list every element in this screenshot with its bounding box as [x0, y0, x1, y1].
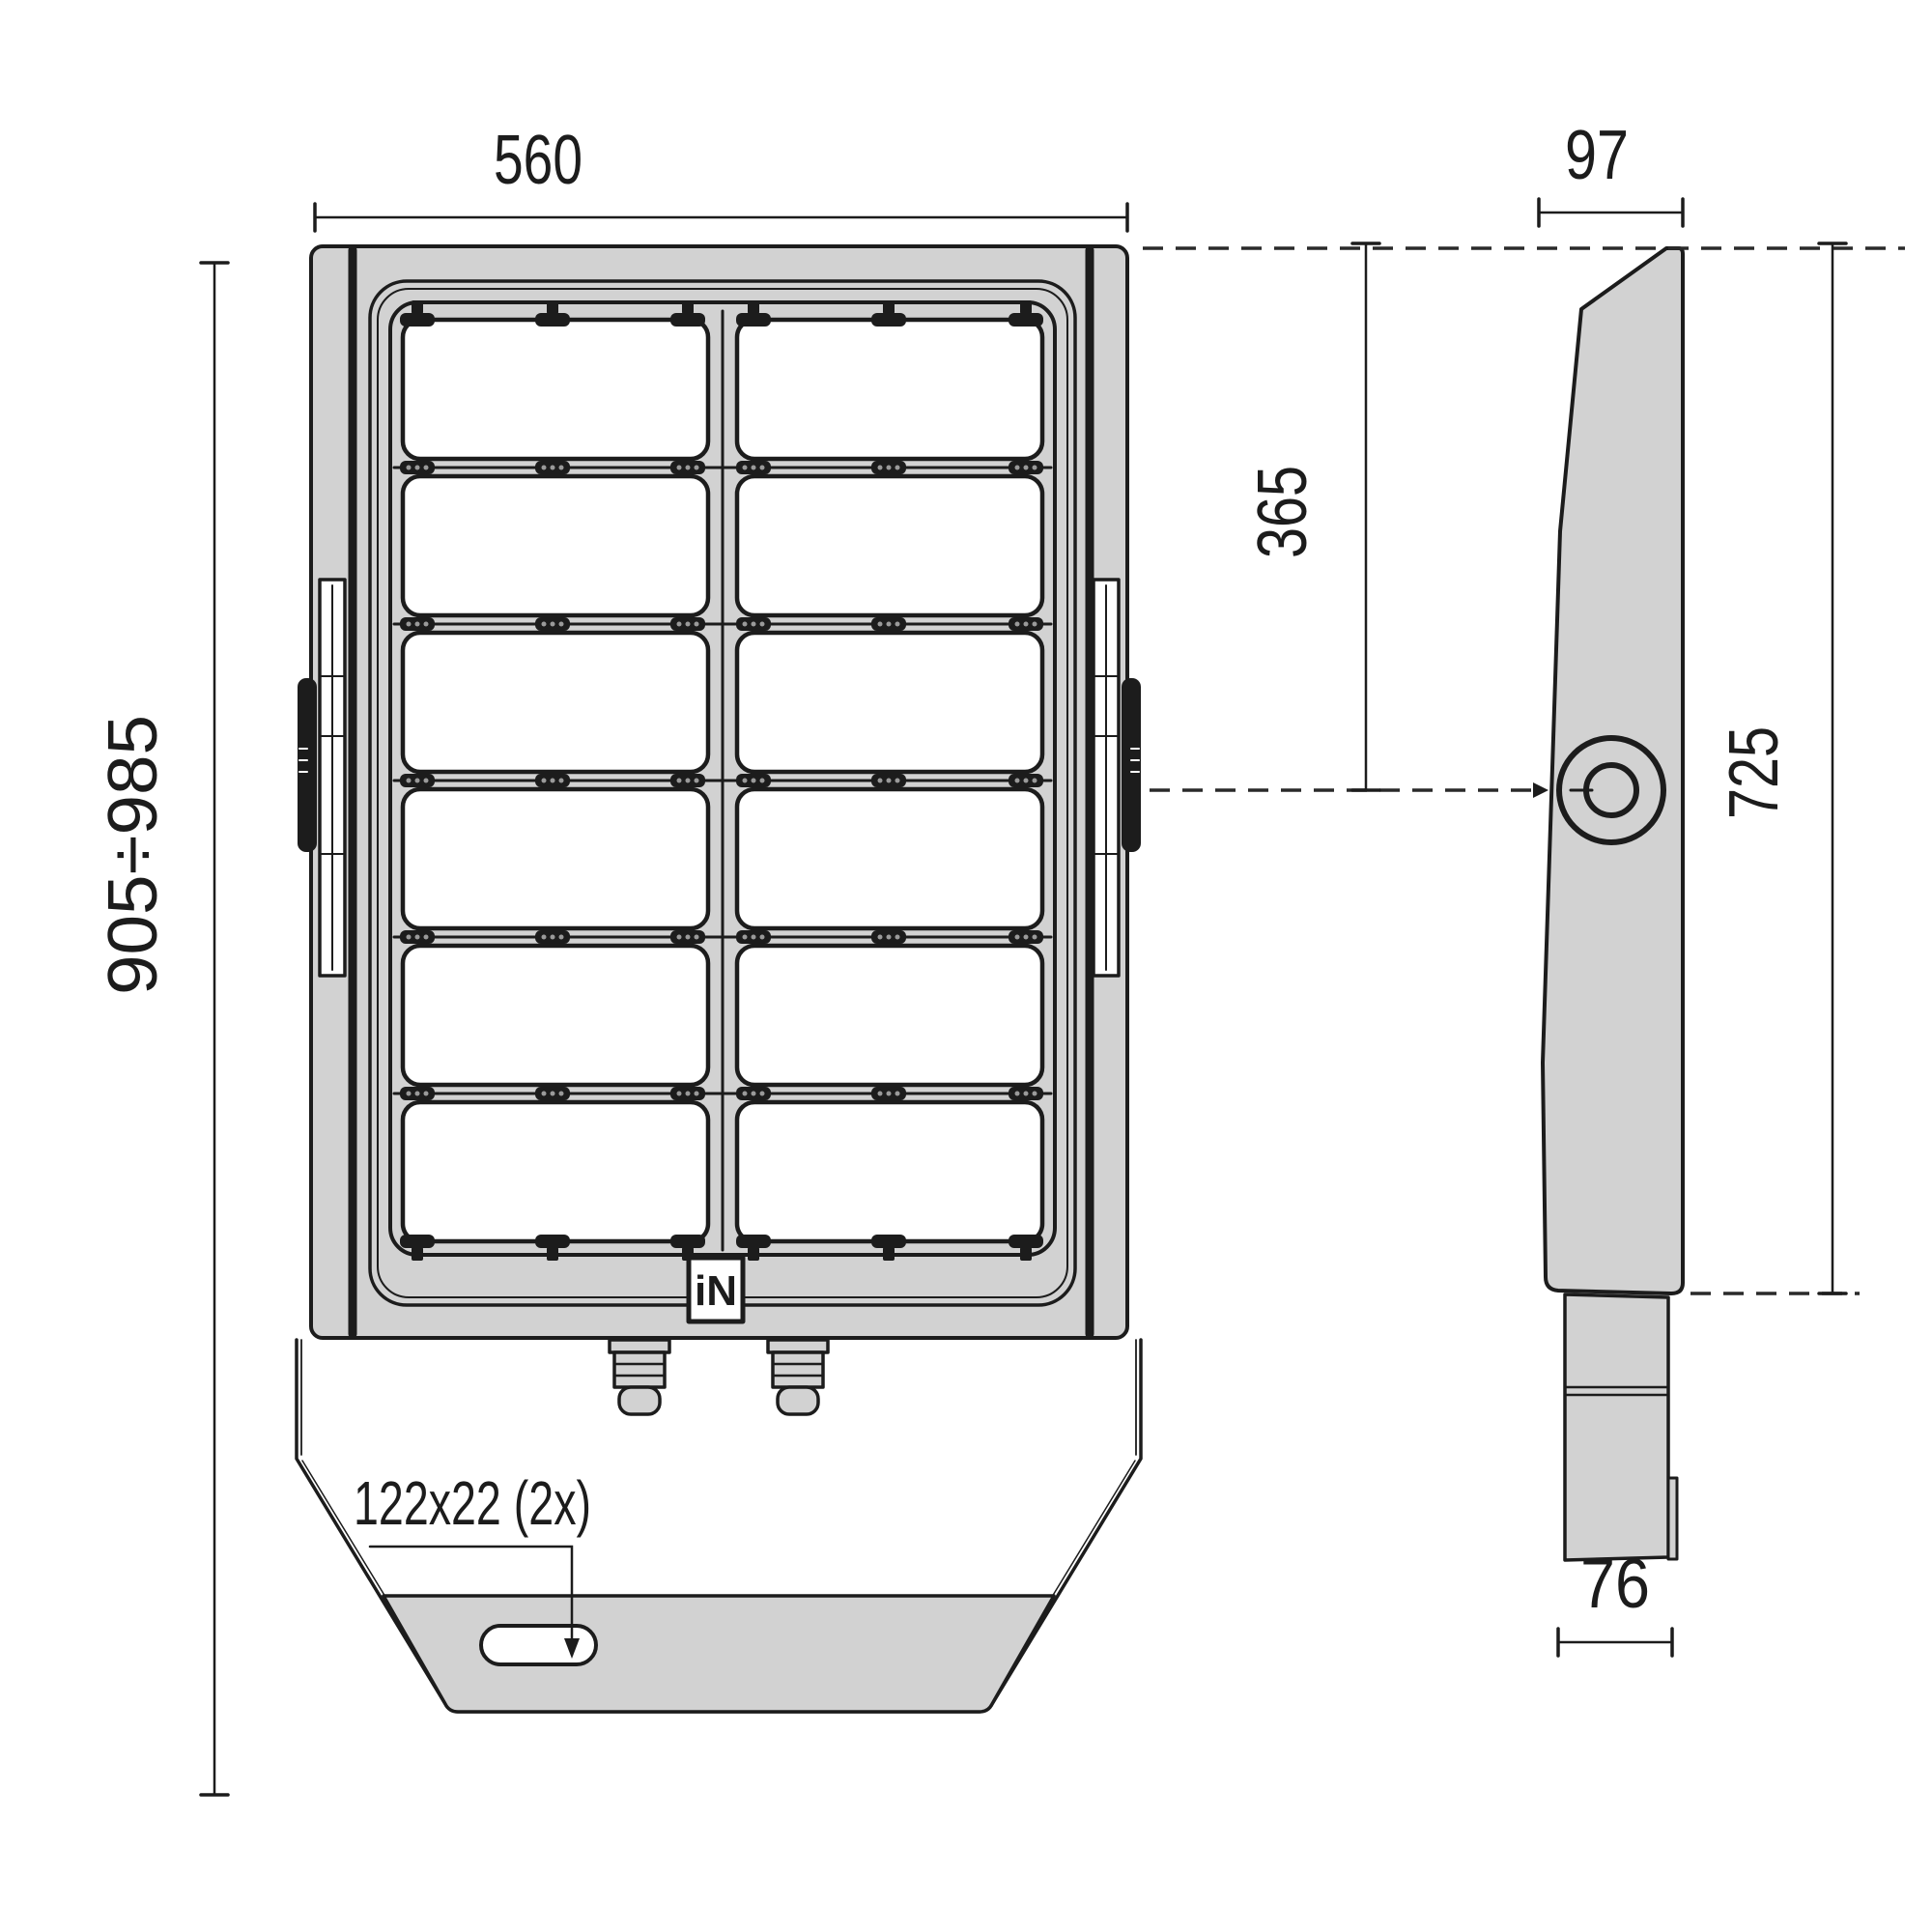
panel-clip-dot	[887, 1092, 892, 1096]
panel-clip-dot	[695, 622, 699, 627]
panel-clip-dot	[760, 466, 765, 470]
led-panel	[737, 320, 1042, 459]
panel-clip-dot	[686, 779, 691, 783]
panel-clip-dot	[895, 1092, 900, 1096]
panel-clip-dot	[424, 935, 429, 940]
panel-clip	[535, 1235, 570, 1248]
panel-clip-dot	[407, 935, 412, 940]
panel-clip-dot	[407, 466, 412, 470]
panel-clip-dot	[887, 935, 892, 940]
floodlight-dimension-drawing: iN	[0, 0, 1932, 1932]
panel-clip-dot	[686, 935, 691, 940]
panel-clip-dot	[686, 622, 691, 627]
panel-clip-dot	[695, 466, 699, 470]
right-side-rail	[1094, 580, 1141, 976]
panel-clip-dot	[895, 935, 900, 940]
dimension-arm-width: 76	[1558, 1546, 1672, 1656]
panel-clip-stem	[1020, 300, 1032, 314]
panel-clip-dot	[895, 779, 900, 783]
dimension-pivot-offset: 365	[1244, 243, 1379, 790]
mounting-slot	[481, 1626, 596, 1664]
panel-clip-dot	[878, 935, 883, 940]
dimension-pivot-offset-label: 365	[1244, 466, 1321, 558]
panel-clip-stem	[883, 1247, 895, 1261]
panel-clip	[871, 313, 906, 327]
panel-clip	[1009, 313, 1043, 327]
panel-clip-dot	[542, 1092, 547, 1096]
dimension-overall-height-label: 905÷985	[95, 715, 172, 995]
led-panel	[403, 1102, 708, 1241]
panel-clip-dot	[760, 1092, 765, 1096]
panel-clip-dot	[542, 779, 547, 783]
panel-clip-dot	[559, 622, 564, 627]
panel-clip-dot	[752, 779, 756, 783]
dimension-front-width: 560	[315, 122, 1127, 231]
side-mounting-arm	[1565, 1294, 1677, 1560]
panel-clip-dot	[1024, 466, 1029, 470]
panel-clip-dot	[878, 466, 883, 470]
panel-clip-dot	[752, 1092, 756, 1096]
panel-clip-dot	[1024, 935, 1029, 940]
panel-clip-dot	[743, 935, 748, 940]
panel-clip-dot	[407, 622, 412, 627]
led-panel	[403, 946, 708, 1085]
panel-clip-dot	[1033, 935, 1037, 940]
led-panel	[737, 633, 1042, 772]
panel-clip-dot	[743, 1092, 748, 1096]
panel-clip-dot	[415, 935, 420, 940]
led-panel	[737, 476, 1042, 615]
panel-clip	[736, 1235, 771, 1248]
panel-clip-dot	[760, 622, 765, 627]
panel-clip-dot	[1033, 466, 1037, 470]
panel-clip-dot	[551, 1092, 555, 1096]
panel-clip-dot	[760, 935, 765, 940]
panel-clip-dot	[895, 466, 900, 470]
left-side-rail	[298, 580, 345, 976]
logo-text: iN	[695, 1267, 737, 1315]
dimension-housing-height: 725	[1716, 243, 1846, 1293]
panel-clip-dot	[424, 779, 429, 783]
dimension-housing-height-label: 725	[1716, 726, 1793, 819]
side-view	[1533, 248, 1683, 1560]
panel-clip-stem	[547, 300, 558, 314]
panel-clip-dot	[1015, 622, 1020, 627]
panel-clip	[400, 1235, 435, 1248]
panel-clip-dot	[559, 466, 564, 470]
panel-clip-dot	[542, 622, 547, 627]
panel-clip-stem	[748, 1247, 759, 1261]
panel-clip-dot	[686, 1092, 691, 1096]
panel-clip-dot	[752, 935, 756, 940]
dimension-overall-height: 905÷985	[95, 263, 228, 1795]
panel-clip-dot	[551, 779, 555, 783]
led-panel	[737, 946, 1042, 1085]
panel-clip-dot	[415, 466, 420, 470]
panel-clip-dot	[752, 622, 756, 627]
panel-clip-dot	[695, 779, 699, 783]
panel-clip-dot	[551, 935, 555, 940]
panel-clip-dot	[551, 622, 555, 627]
panel-clip-dot	[407, 1092, 412, 1096]
panel-clip-dot	[760, 779, 765, 783]
dimension-arm-width-label: 76	[1580, 1546, 1650, 1623]
led-panel	[737, 789, 1042, 928]
panel-clip-dot	[743, 622, 748, 627]
panel-clip-dot	[551, 466, 555, 470]
arm-side-plate	[1668, 1478, 1677, 1559]
panel-clip	[670, 1235, 705, 1248]
panel-clip-dot	[415, 622, 420, 627]
panel-clip-dot	[407, 779, 412, 783]
panel-clip-dot	[677, 779, 682, 783]
panel-clip-dot	[424, 622, 429, 627]
panel-clip-dot	[677, 622, 682, 627]
panel-clip-dot	[1015, 466, 1020, 470]
technical-drawing-page: iN	[0, 0, 1932, 1932]
panel-clip-dot	[887, 622, 892, 627]
panel-clip-dot	[1033, 779, 1037, 783]
panel-clip-dot	[1033, 1092, 1037, 1096]
panel-clip-dot	[542, 466, 547, 470]
panel-clip-stem	[883, 300, 895, 314]
led-panel	[737, 1102, 1042, 1241]
panel-clip-dot	[1033, 622, 1037, 627]
led-panel-grid	[394, 300, 1051, 1261]
panel-clip-stem	[547, 1247, 558, 1261]
panel-clip	[736, 313, 771, 327]
panel-clip-dot	[677, 1092, 682, 1096]
panel-clip-dot	[878, 779, 883, 783]
led-panel	[403, 320, 708, 459]
pivot-datum-arrow	[1533, 782, 1548, 798]
panel-clip-dot	[559, 779, 564, 783]
dimension-front-width-label: 560	[494, 122, 582, 199]
panel-clip-dot	[677, 935, 682, 940]
dimension-side-depth: 97	[1539, 117, 1683, 226]
right-latch-tab	[1122, 678, 1141, 852]
panel-clip-dot	[695, 935, 699, 940]
panel-clip-dot	[1015, 1092, 1020, 1096]
panel-clip-stem	[682, 300, 694, 314]
panel-clip-stem	[412, 1247, 423, 1261]
panel-clip-dot	[677, 466, 682, 470]
panel-clip-dot	[743, 466, 748, 470]
panel-clip-stem	[1020, 1247, 1032, 1261]
panel-clip-dot	[1024, 779, 1029, 783]
cable-gland-left	[610, 1340, 669, 1414]
panel-clip-dot	[559, 935, 564, 940]
panel-clip-dot	[878, 622, 883, 627]
panel-clip-dot	[1024, 622, 1029, 627]
panel-clip-stem	[412, 300, 423, 314]
panel-clip-dot	[1024, 1092, 1029, 1096]
panel-clip	[1009, 1235, 1043, 1248]
led-panel	[403, 476, 708, 615]
panel-clip-dot	[878, 1092, 883, 1096]
panel-clip	[670, 313, 705, 327]
panel-clip-dot	[542, 935, 547, 940]
panel-clip-dot	[887, 466, 892, 470]
panel-clip-dot	[559, 1092, 564, 1096]
panel-clip-dot	[695, 1092, 699, 1096]
led-panel	[403, 633, 708, 772]
panel-clip-stem	[748, 300, 759, 314]
panel-clip-dot	[1015, 779, 1020, 783]
panel-clip	[400, 313, 435, 327]
panel-clip-dot	[424, 1092, 429, 1096]
panel-clip-dot	[895, 622, 900, 627]
panel-clip-dot	[686, 466, 691, 470]
panel-clip-dot	[1015, 935, 1020, 940]
panel-clip-dot	[415, 1092, 420, 1096]
dimension-side-depth-label: 97	[1565, 117, 1629, 194]
left-latch-tab	[298, 678, 317, 852]
led-panel	[403, 789, 708, 928]
panel-clip-dot	[743, 779, 748, 783]
panel-clip-dot	[415, 779, 420, 783]
brand-logo: iN	[689, 1258, 743, 1321]
panel-clip	[871, 1235, 906, 1248]
slot-callout-label: 122x22 (2x)	[354, 1468, 591, 1538]
cable-gland-right	[768, 1340, 828, 1414]
panel-clip-dot	[424, 466, 429, 470]
panel-clip-dot	[752, 466, 756, 470]
panel-clip	[535, 313, 570, 327]
panel-clip-dot	[887, 779, 892, 783]
